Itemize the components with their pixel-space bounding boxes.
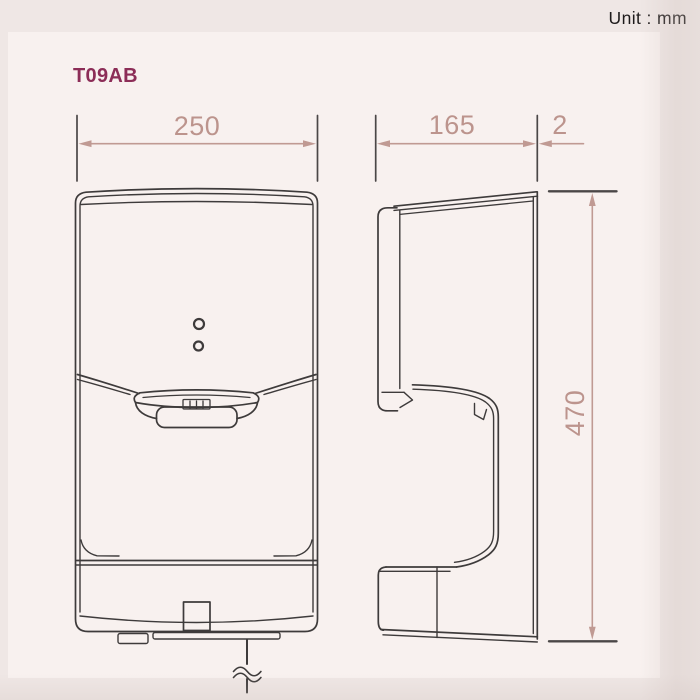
front-top-seam <box>81 202 312 205</box>
dim-arrow-2 <box>539 140 584 147</box>
front-view <box>76 189 318 693</box>
dim-arrow-165 <box>377 140 536 147</box>
diagram-stage: Unit : mm T09AB 250 165 2 470 <box>0 0 700 700</box>
basin-fillet-right <box>274 540 312 556</box>
basin-fillet-left <box>81 540 119 556</box>
outlet-nozzle <box>157 407 238 428</box>
front-sweep-left-upper <box>78 375 140 394</box>
side-view <box>378 192 538 642</box>
dim-label-panel-thickness: 2 <box>515 109 605 141</box>
sensor-hole-bottom <box>194 342 203 351</box>
dim-label-width: 250 <box>152 110 242 142</box>
unit-label: Unit : mm <box>609 8 687 29</box>
dim-label-height: 470 <box>559 368 591 458</box>
base-left-edge <box>378 567 386 630</box>
back-plate <box>378 208 398 411</box>
air-outlet-lens-inner <box>143 395 250 398</box>
body-clip-tab <box>475 404 487 420</box>
bottom-bar <box>153 633 280 640</box>
front-bottom-bow <box>80 616 313 623</box>
front-sweep-right-upper <box>255 375 316 394</box>
model-code-title: T09AB <box>73 65 138 88</box>
bottom-tab <box>118 634 148 644</box>
back-plate-hook <box>400 392 413 407</box>
dim-label-depth: 165 <box>407 109 497 141</box>
drain-window <box>184 602 211 631</box>
line-art <box>0 0 700 700</box>
body-curve-inner <box>413 389 494 562</box>
power-cord <box>234 640 261 693</box>
sensor-hole-top <box>194 319 204 329</box>
